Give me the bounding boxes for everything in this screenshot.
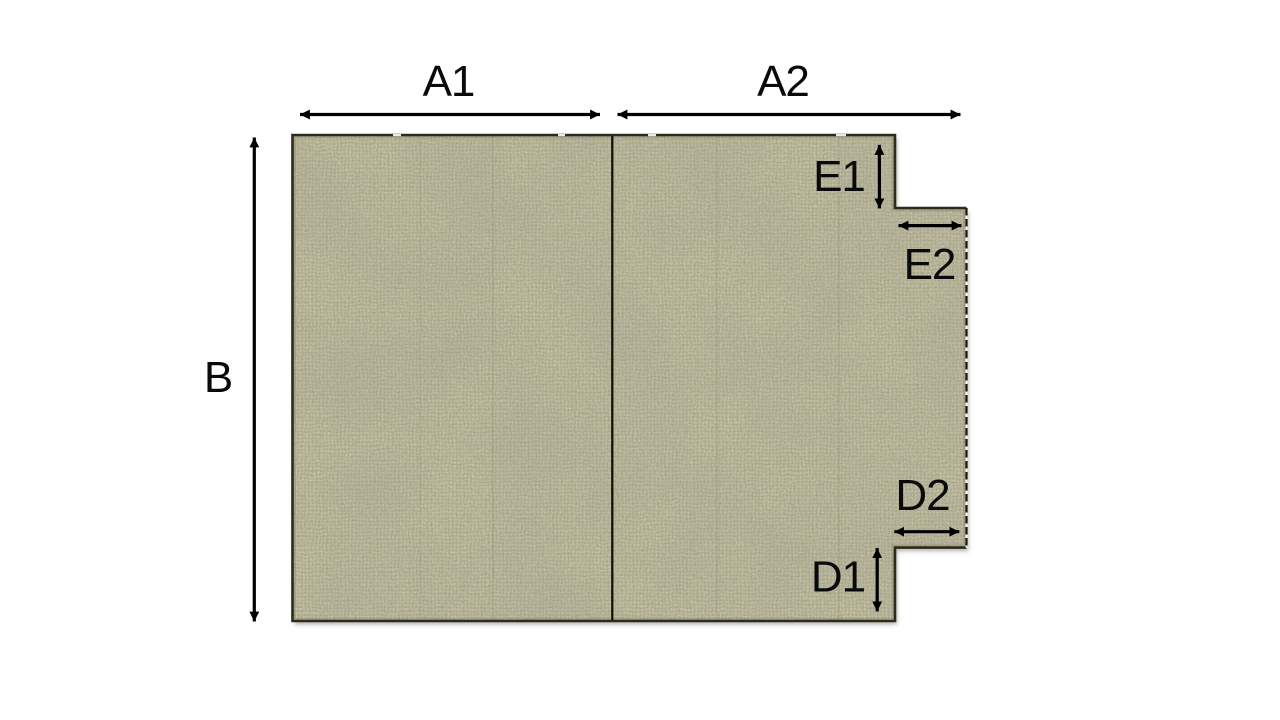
svg-text:A1: A1 xyxy=(423,57,475,106)
svg-text:B: B xyxy=(204,353,232,402)
svg-text:E1: E1 xyxy=(813,152,865,201)
svg-text:D1: D1 xyxy=(811,553,865,602)
svg-text:D2: D2 xyxy=(895,471,949,520)
svg-text:E2: E2 xyxy=(904,240,956,289)
svg-text:A2: A2 xyxy=(757,57,809,106)
